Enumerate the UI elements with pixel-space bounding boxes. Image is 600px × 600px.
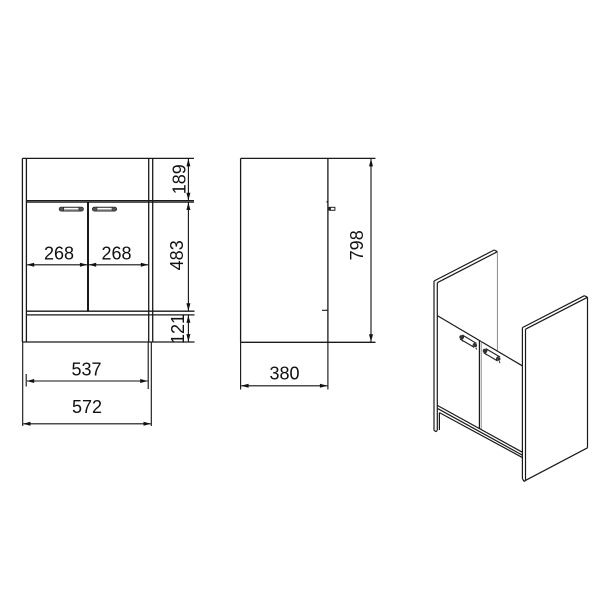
svg-text:483: 483 — [167, 240, 187, 270]
svg-text:537: 537 — [71, 359, 101, 379]
svg-text:268: 268 — [101, 244, 131, 264]
svg-text:572: 572 — [72, 397, 102, 417]
svg-text:121: 121 — [168, 314, 188, 344]
svg-text:189: 189 — [169, 164, 189, 194]
svg-text:798: 798 — [347, 230, 367, 260]
svg-text:268: 268 — [44, 244, 74, 264]
svg-text:380: 380 — [269, 364, 299, 384]
